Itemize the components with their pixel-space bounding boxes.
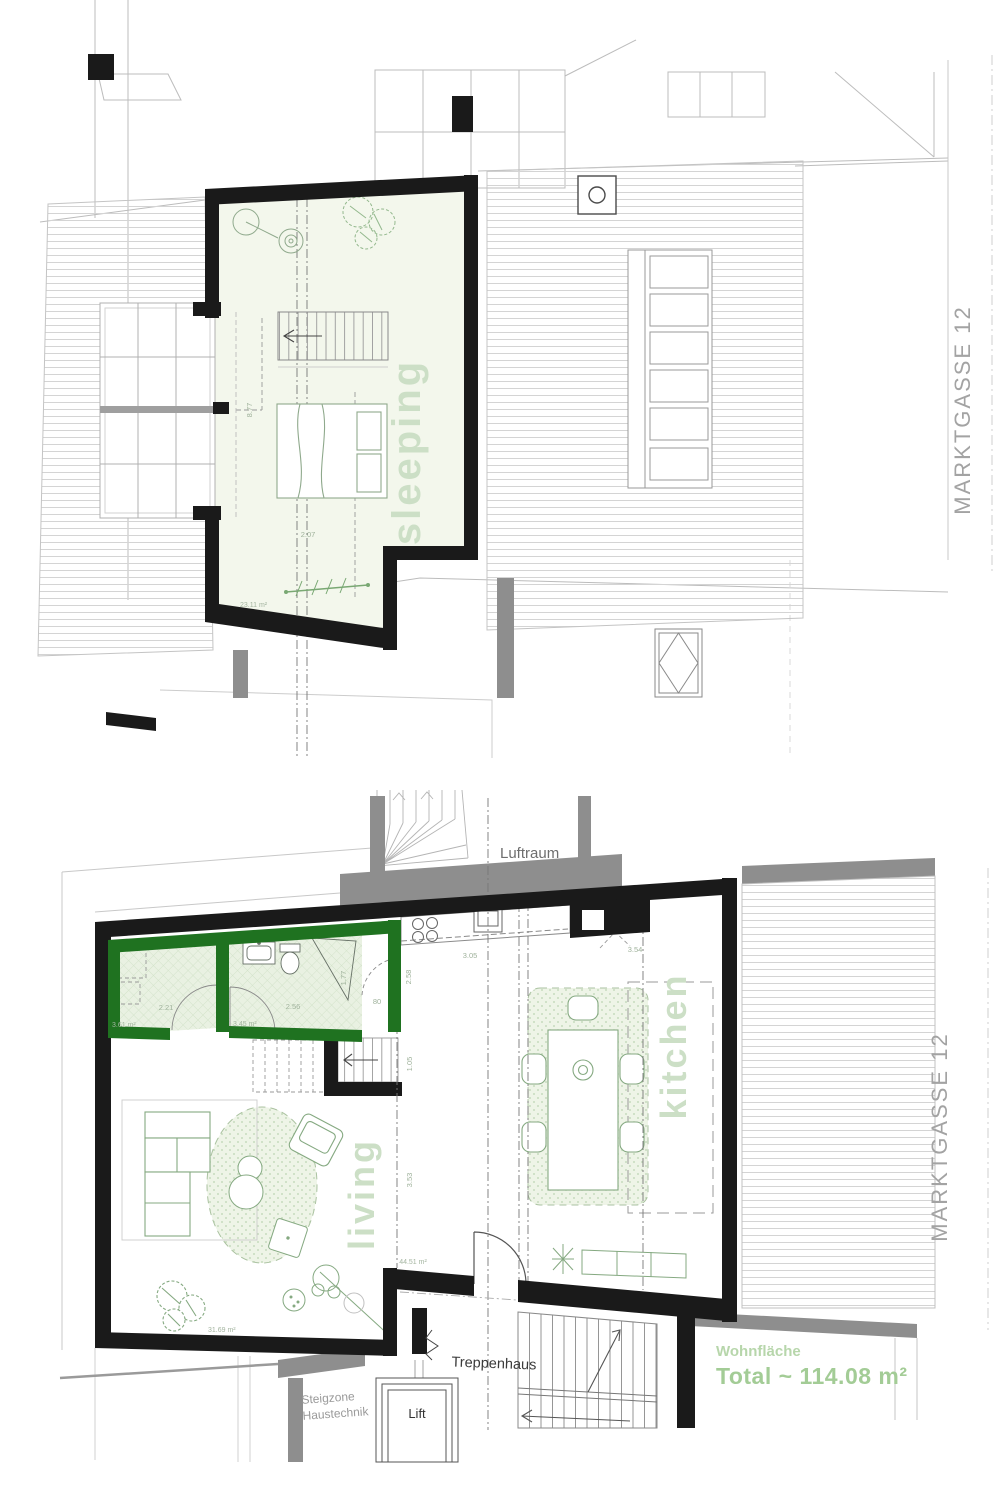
- black-wall-fragment: [106, 712, 156, 731]
- wardrobe: [253, 1040, 325, 1092]
- gray-wall-fragment: [233, 650, 248, 698]
- bed: [277, 404, 387, 498]
- sofa: [145, 1112, 210, 1236]
- sleeping-label: sleeping: [385, 359, 429, 545]
- living-area-label: 31.69 m²: [208, 1327, 236, 1334]
- void-stair: [377, 790, 468, 866]
- svg-text:MARKTGASSE 12: MARKTGASSE 12: [927, 1032, 952, 1241]
- dim-living-width: 3.53: [405, 1173, 414, 1188]
- dim-shower: 1.77: [339, 971, 348, 986]
- roof-chimney: [578, 176, 616, 214]
- toilet-icon: [280, 944, 300, 974]
- gray-wall-fragment: [497, 578, 514, 698]
- reduit-area-label: 3.61 m²: [112, 1022, 136, 1029]
- dormer-window: [100, 303, 215, 518]
- roof-skylight-strip: [628, 250, 712, 488]
- kitchen-area-label: 44.51 m²: [399, 1259, 427, 1266]
- riser-zone-label: Steigzone Haustechnik: [301, 1388, 370, 1423]
- dim-reduit-width: 2.21: [159, 1003, 174, 1012]
- sleeping-stair: [278, 312, 388, 367]
- sleeping-dim-width: 2.07: [301, 530, 316, 539]
- svg-text:MARKTGASSE 12: MARKTGASSE 12: [950, 305, 975, 514]
- context-skylight-dark-pane: [452, 96, 473, 132]
- kitchen-label: kitchen: [653, 972, 694, 1119]
- dim-bath-width: 2.56: [286, 1002, 301, 1011]
- plant-x-icon: [552, 1244, 574, 1274]
- bath-sink-icon: [243, 942, 275, 964]
- floor-plan-drawing: sleeping 23.11 m² 2.07 8.77 MARKTGASSE 1…: [0, 0, 1000, 1500]
- diamond-skylight: [655, 629, 702, 697]
- bath-area-label: 3.45 m²: [233, 1021, 257, 1028]
- entrance-door: [474, 1232, 526, 1284]
- living-label: living: [341, 1138, 382, 1250]
- lift-label: Lift: [408, 1406, 426, 1421]
- void-label: Luftraum: [500, 845, 559, 862]
- floor-plan-sheet: sleeping 23.11 m² 2.07 8.77 MARKTGASSE 1…: [0, 0, 1000, 1500]
- internal-stair: [324, 1036, 402, 1096]
- summary-title: Wohnfläche: [716, 1343, 801, 1360]
- monstera-plant-icon: [157, 1281, 205, 1331]
- summary-total: Total ~ 114.08 m²: [716, 1363, 908, 1389]
- street-label-lower: MARKTGASSE 12: [927, 868, 988, 1330]
- dim-bath-door: 80: [373, 997, 381, 1006]
- sleeping-dim-length: 8.77: [245, 403, 254, 418]
- svg-text:Haustechnik: Haustechnik: [302, 1404, 370, 1423]
- dim-hall: 1.05: [405, 1057, 414, 1072]
- roof-hatch-lower-right: [742, 876, 935, 1308]
- svg-text:Steigzone: Steigzone: [301, 1389, 356, 1407]
- dim-kitchen-counter: 3.05: [463, 951, 478, 960]
- context-chimney-block: [88, 54, 114, 80]
- sideboard: [552, 1244, 686, 1278]
- dim-kitchen-right: 3.54: [628, 945, 643, 954]
- stairwell-label: Treppenhaus: [451, 1355, 536, 1374]
- dim-corridor: 2.58: [404, 970, 413, 985]
- gray-context-edge: [60, 1364, 278, 1378]
- area-summary: Wohnfläche Total ~ 114.08 m²: [716, 1343, 908, 1389]
- street-label-upper: MARKTGASSE 12: [948, 55, 992, 575]
- plant-cluster: [283, 1265, 392, 1338]
- wall-skylight-box: [582, 910, 604, 930]
- sleeping-area-label: 23.11 m²: [240, 602, 268, 609]
